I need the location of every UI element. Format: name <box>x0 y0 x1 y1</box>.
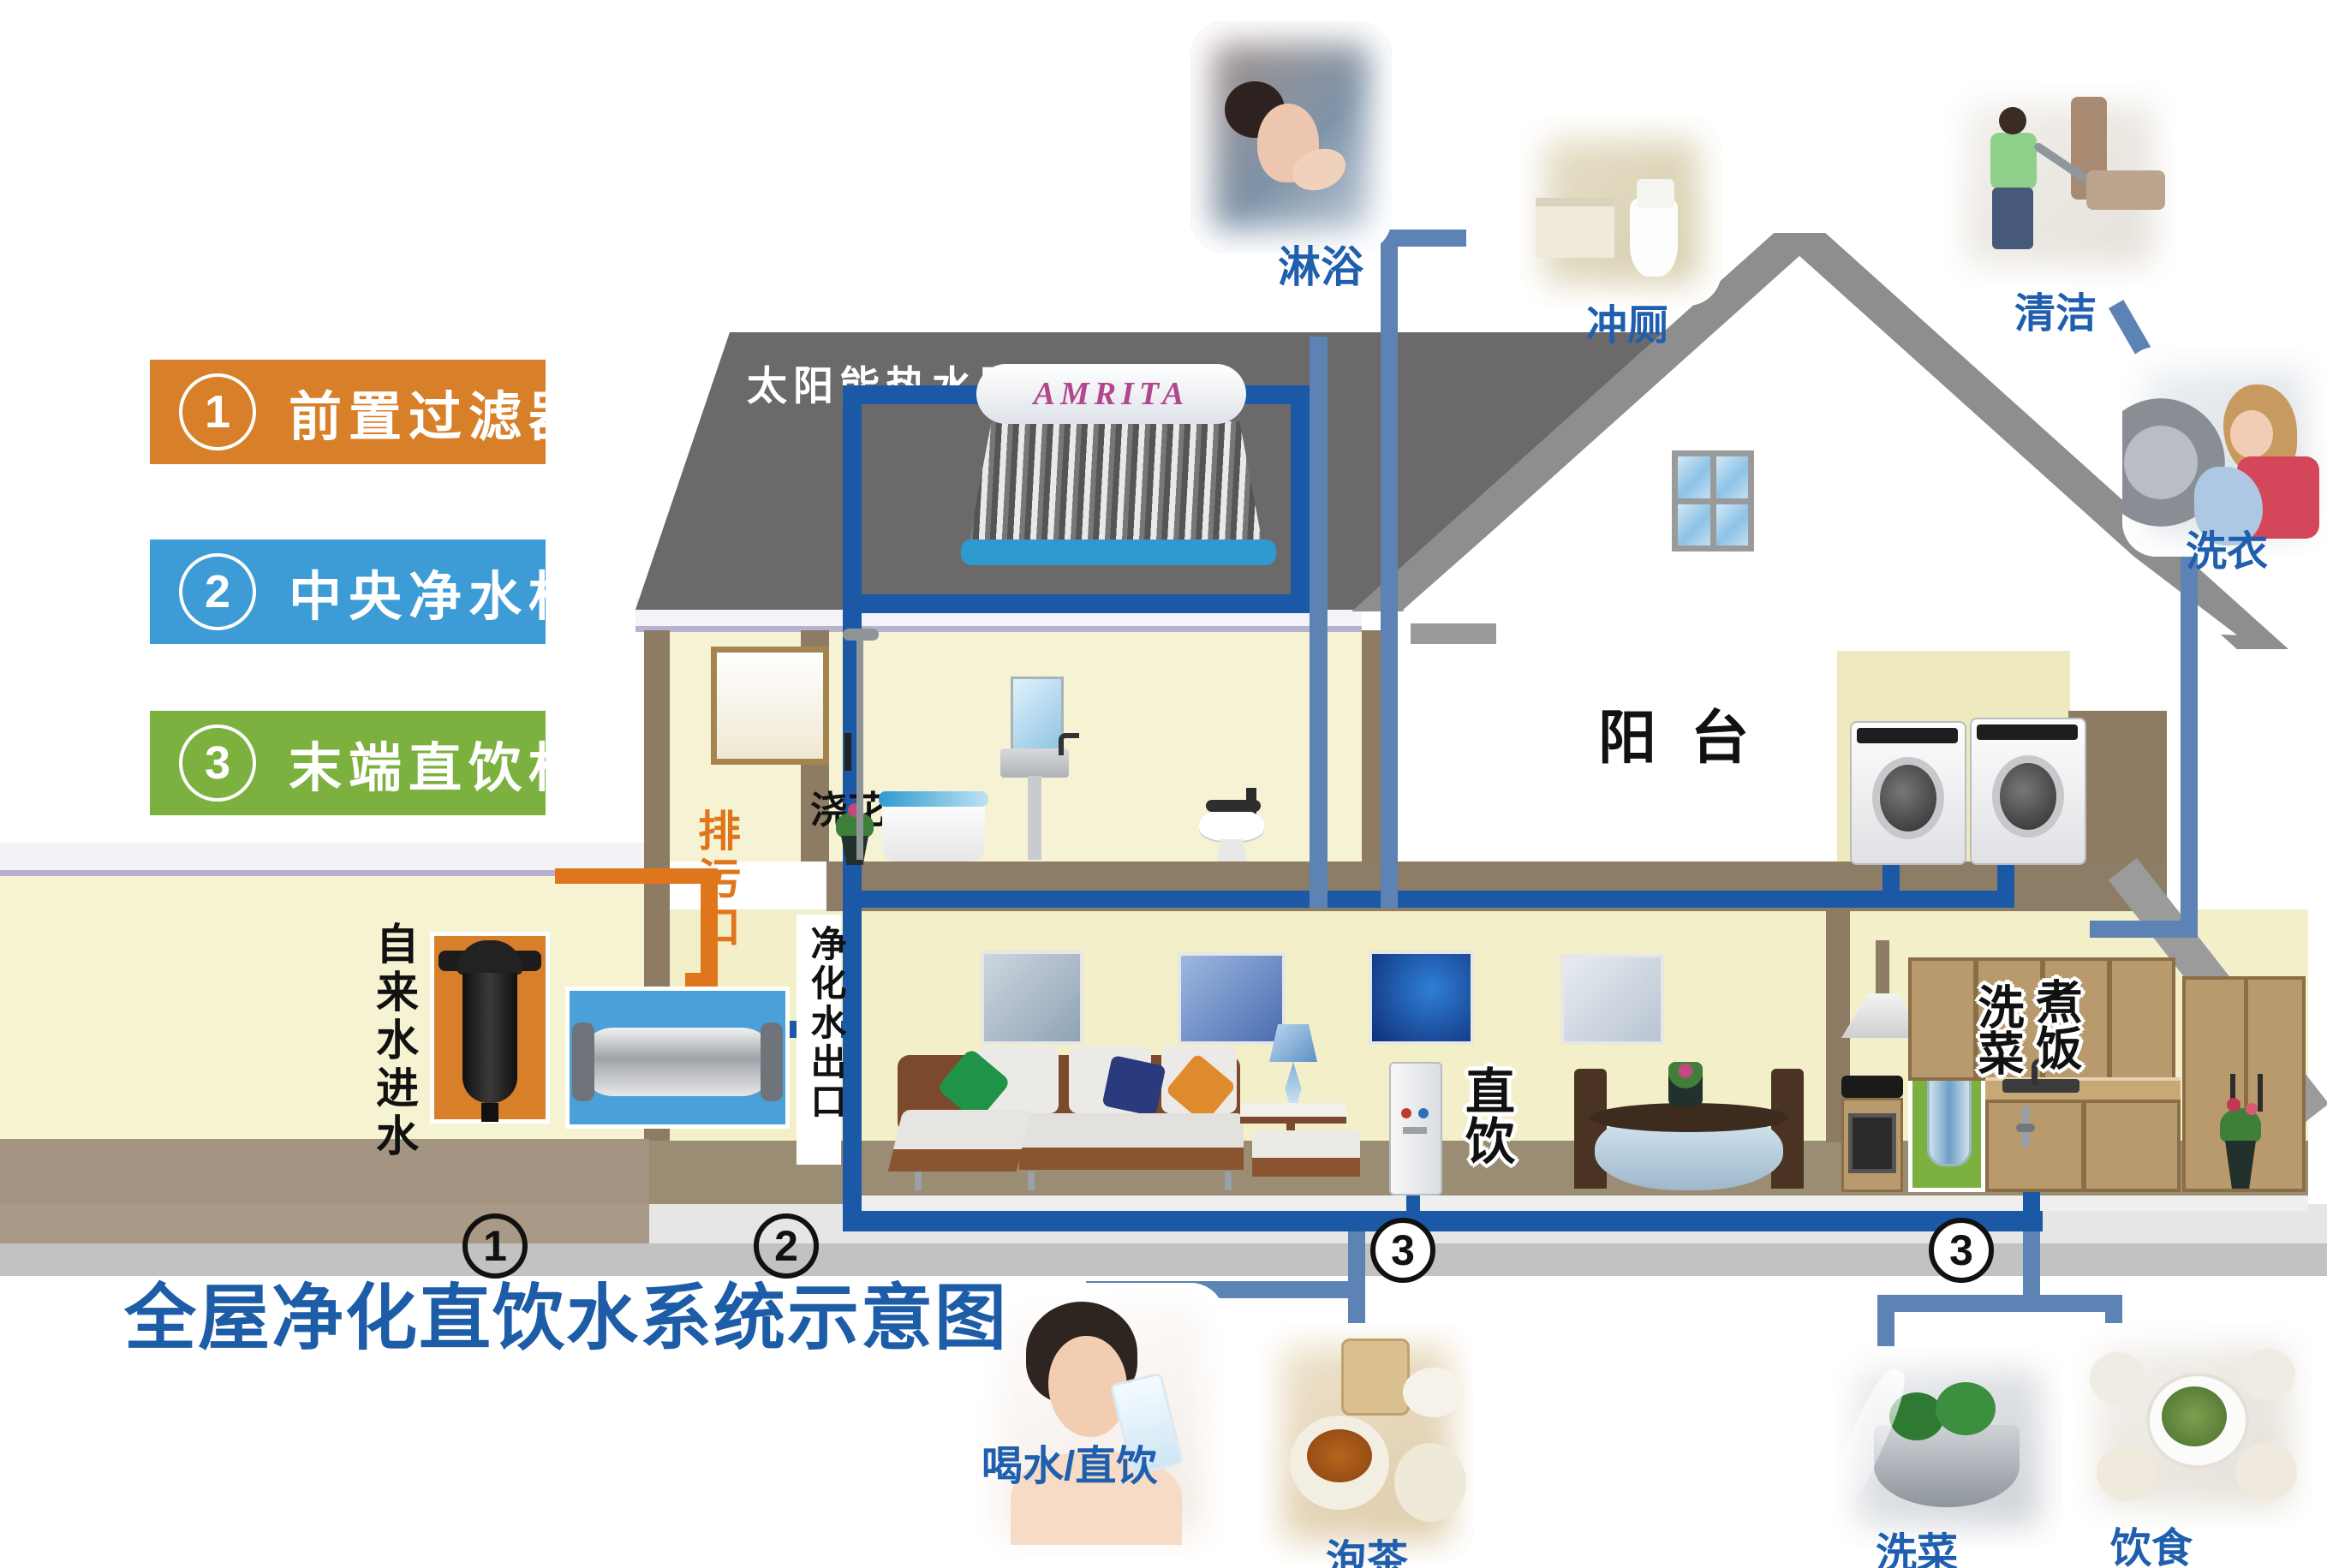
photo-shower <box>1190 21 1392 253</box>
wash-veg-label: 洗菜 <box>1876 1519 1958 1568</box>
pipe-heater-right-drop <box>1291 385 1310 613</box>
pipe-toilet-branch-v <box>1381 230 1398 908</box>
food-center-contents <box>2162 1386 2227 1446</box>
water-system-diagram: 太阳能热水器 AMRITA 自来水进水 净化水出口 排污口 <box>0 0 2327 1568</box>
legend-label-3: 末端直饮机 <box>289 724 588 802</box>
legend-item-prefilter: 1 前置过滤器 <box>150 360 546 464</box>
shower-pole <box>856 635 863 860</box>
marker-terminal-living: 3 <box>1370 1218 1435 1283</box>
dining-table-top <box>1590 1103 1788 1132</box>
sofa-chaise <box>892 1110 1032 1154</box>
clean-man-head <box>1999 107 2026 134</box>
bathroom-sink-pedestal <box>1028 776 1041 860</box>
water-dispenser <box>1389 1062 1442 1195</box>
pipe-toilet-branch-h <box>1398 230 1466 247</box>
annex-wall <box>0 876 649 1142</box>
food-bowl-2 <box>2240 1349 2295 1400</box>
legend-circle-2: 2 <box>179 553 256 630</box>
washing-machine-1 <box>1850 721 1966 865</box>
dining-centerpiece <box>1668 1062 1703 1106</box>
laundry-woman-face <box>2230 410 2273 458</box>
heater-brand: AMRITA <box>1034 375 1190 413</box>
dining-chair-left <box>1574 1069 1607 1189</box>
washer-panel <box>1977 724 2078 740</box>
central-purifier-cylinder <box>579 1028 776 1096</box>
pipe-second-floor-run <box>852 891 2014 908</box>
washing-machine-2 <box>1970 718 2086 865</box>
wall-picture-4 <box>1560 954 1664 1045</box>
clean-sofa <box>2086 170 2165 210</box>
lattice-window <box>711 647 829 765</box>
clean-man-pants <box>1992 188 2033 249</box>
marker-digit: 3 <box>1949 1225 1973 1275</box>
bathtub-rim <box>879 791 988 807</box>
balcony-label: 阳台 <box>1598 690 1783 775</box>
tea-canister <box>1341 1338 1410 1416</box>
tall-cabinet-handle-r <box>2258 1074 2263 1112</box>
kitchen-cook-label: 煮饭 <box>2021 978 2089 1081</box>
marker-terminal-kitchen: 3 <box>1929 1218 1994 1283</box>
purified-outlet-label: 净化水出口 <box>800 925 852 1163</box>
prefilter-body <box>462 973 517 1103</box>
pipe-main-floor-run <box>843 1211 2043 1231</box>
solar-heater-tank: AMRITA <box>976 364 1246 424</box>
food-bowl-4 <box>2235 1443 2297 1501</box>
tap-inlet-label: 自来水进水 <box>363 921 425 1170</box>
legend-item-terminal: 3 末端直饮机 <box>150 711 546 815</box>
window-pane <box>1716 456 1749 498</box>
drain-outlet-label: 排污口 <box>685 808 747 963</box>
toilet-photo-counter <box>1536 198 1614 258</box>
cleaning-label: 清洁 <box>2014 279 2097 339</box>
sofa-leg-2 <box>1028 1172 1035 1190</box>
prefilter-drain-stub <box>481 1103 498 1122</box>
solar-heater-tubes <box>968 421 1263 548</box>
toilet-bowl <box>1199 808 1264 841</box>
photo-cleaning <box>1942 81 2175 287</box>
central-purifier-cap-r <box>761 1022 783 1101</box>
washer-panel <box>1857 728 1958 743</box>
photo-wash-veg <box>1833 1346 2062 1547</box>
dispenser-tap-red <box>1401 1108 1411 1118</box>
wall-picture-3 <box>1369 951 1474 1045</box>
cooktop <box>1841 1076 1903 1098</box>
veg-broccoli-2 <box>1936 1382 1996 1435</box>
veg-colander <box>1874 1425 2020 1507</box>
dispenser-tray <box>1403 1127 1427 1134</box>
kitchen-plant-bloom-2 <box>2246 1103 2258 1115</box>
ground-strip-annex2 <box>0 1204 649 1243</box>
legend-item-central: 2 中央净水机 <box>150 540 546 644</box>
ground-strip-annex <box>0 1139 649 1204</box>
tea-liquid <box>1307 1429 1372 1482</box>
pipe-kitchen-bracket <box>1877 1295 2122 1312</box>
bathroom-sink-faucet <box>1059 733 1079 755</box>
tea-pot <box>1403 1368 1465 1417</box>
dining-chair-right <box>1771 1069 1804 1189</box>
cabinet-valve <box>2016 1124 2035 1132</box>
food-label: 饮食 <box>2110 1514 2193 1568</box>
legend-num: 1 <box>205 385 230 438</box>
legend-num: 3 <box>205 736 230 790</box>
pipe-washer-stub-1 <box>1882 860 1900 894</box>
solar-heater-base <box>961 540 1276 565</box>
watering-tick <box>844 733 851 771</box>
bathroom-mirror <box>1011 677 1064 752</box>
washer-door <box>1992 755 2064 838</box>
shower-label: 淋浴 <box>1278 233 1363 295</box>
sofa-pillow-navy <box>1101 1055 1166 1117</box>
drinking-label: 喝水/直饮 <box>982 1432 1157 1492</box>
pipe-laundry-v <box>2181 555 2198 938</box>
window-pane <box>1716 504 1749 546</box>
window-pane <box>1678 504 1710 546</box>
laundry-label: 洗衣 <box>2186 517 2268 577</box>
legend-label-2: 中央净水机 <box>289 553 588 630</box>
pipe-kitchen-feed <box>2023 1231 2040 1300</box>
sofa-leg-1 <box>915 1172 922 1190</box>
photo-toilet <box>1520 116 1721 306</box>
photo-drinking <box>976 1283 1225 1557</box>
toilet-label: 冲厕 <box>1586 291 1668 351</box>
pipe-washer-stub-2 <box>1997 860 2014 894</box>
pipe-shower-branch <box>1310 337 1328 908</box>
sofa-leg-3 <box>1225 1172 1232 1190</box>
floor-white-sliver <box>843 1195 2308 1211</box>
shower-head <box>843 629 879 641</box>
dispenser-tap-blue <box>1418 1108 1429 1118</box>
tea-cup-side <box>1394 1443 1466 1522</box>
oven-door <box>1848 1113 1896 1173</box>
food-bowl-1 <box>2090 1352 2146 1405</box>
legend-label-1: 前置过滤器 <box>289 373 588 450</box>
marker-digit: 3 <box>1391 1225 1415 1275</box>
central-purifier-cap-l <box>572 1022 594 1101</box>
clean-man-shirt <box>1990 133 2037 189</box>
toilet-base <box>1216 839 1247 862</box>
photo-food <box>2073 1323 2312 1529</box>
legend-circle-1: 1 <box>179 373 256 450</box>
ottoman-base <box>1252 1158 1360 1177</box>
legend-circle-3: 3 <box>179 724 256 802</box>
page-title: 全屋净化直饮水系统示意图 <box>124 1261 1008 1364</box>
window-pane <box>1678 456 1710 498</box>
gable-window <box>1672 450 1754 551</box>
pipe-laundry-h <box>2090 921 2198 938</box>
kitchen-plant-bloom-1 <box>2227 1098 2240 1112</box>
base-cabinets <box>1985 1100 2181 1192</box>
toilet-photo-toilet <box>1630 198 1678 277</box>
toilet-photo-tank <box>1637 179 1674 208</box>
toilet-seat <box>1206 800 1261 812</box>
wall-picture-2 <box>1178 952 1286 1045</box>
wall-picture-1 <box>981 951 1083 1045</box>
range-hood-stem <box>1876 940 1889 993</box>
direct-drink-label: 直饮 <box>1449 1065 1521 1194</box>
side-table-top <box>1240 1103 1346 1124</box>
sofa-seat-base <box>1019 1148 1244 1170</box>
balcony-ledge <box>1411 623 1496 644</box>
tea-label: 泡茶 <box>1326 1526 1408 1568</box>
legend-num: 2 <box>205 565 230 618</box>
pipe-frame-bottom <box>852 594 1310 613</box>
washer-door <box>1872 757 1944 839</box>
sofa-chaise-base <box>888 1149 1022 1172</box>
food-bowl-3 <box>2097 1445 2157 1501</box>
